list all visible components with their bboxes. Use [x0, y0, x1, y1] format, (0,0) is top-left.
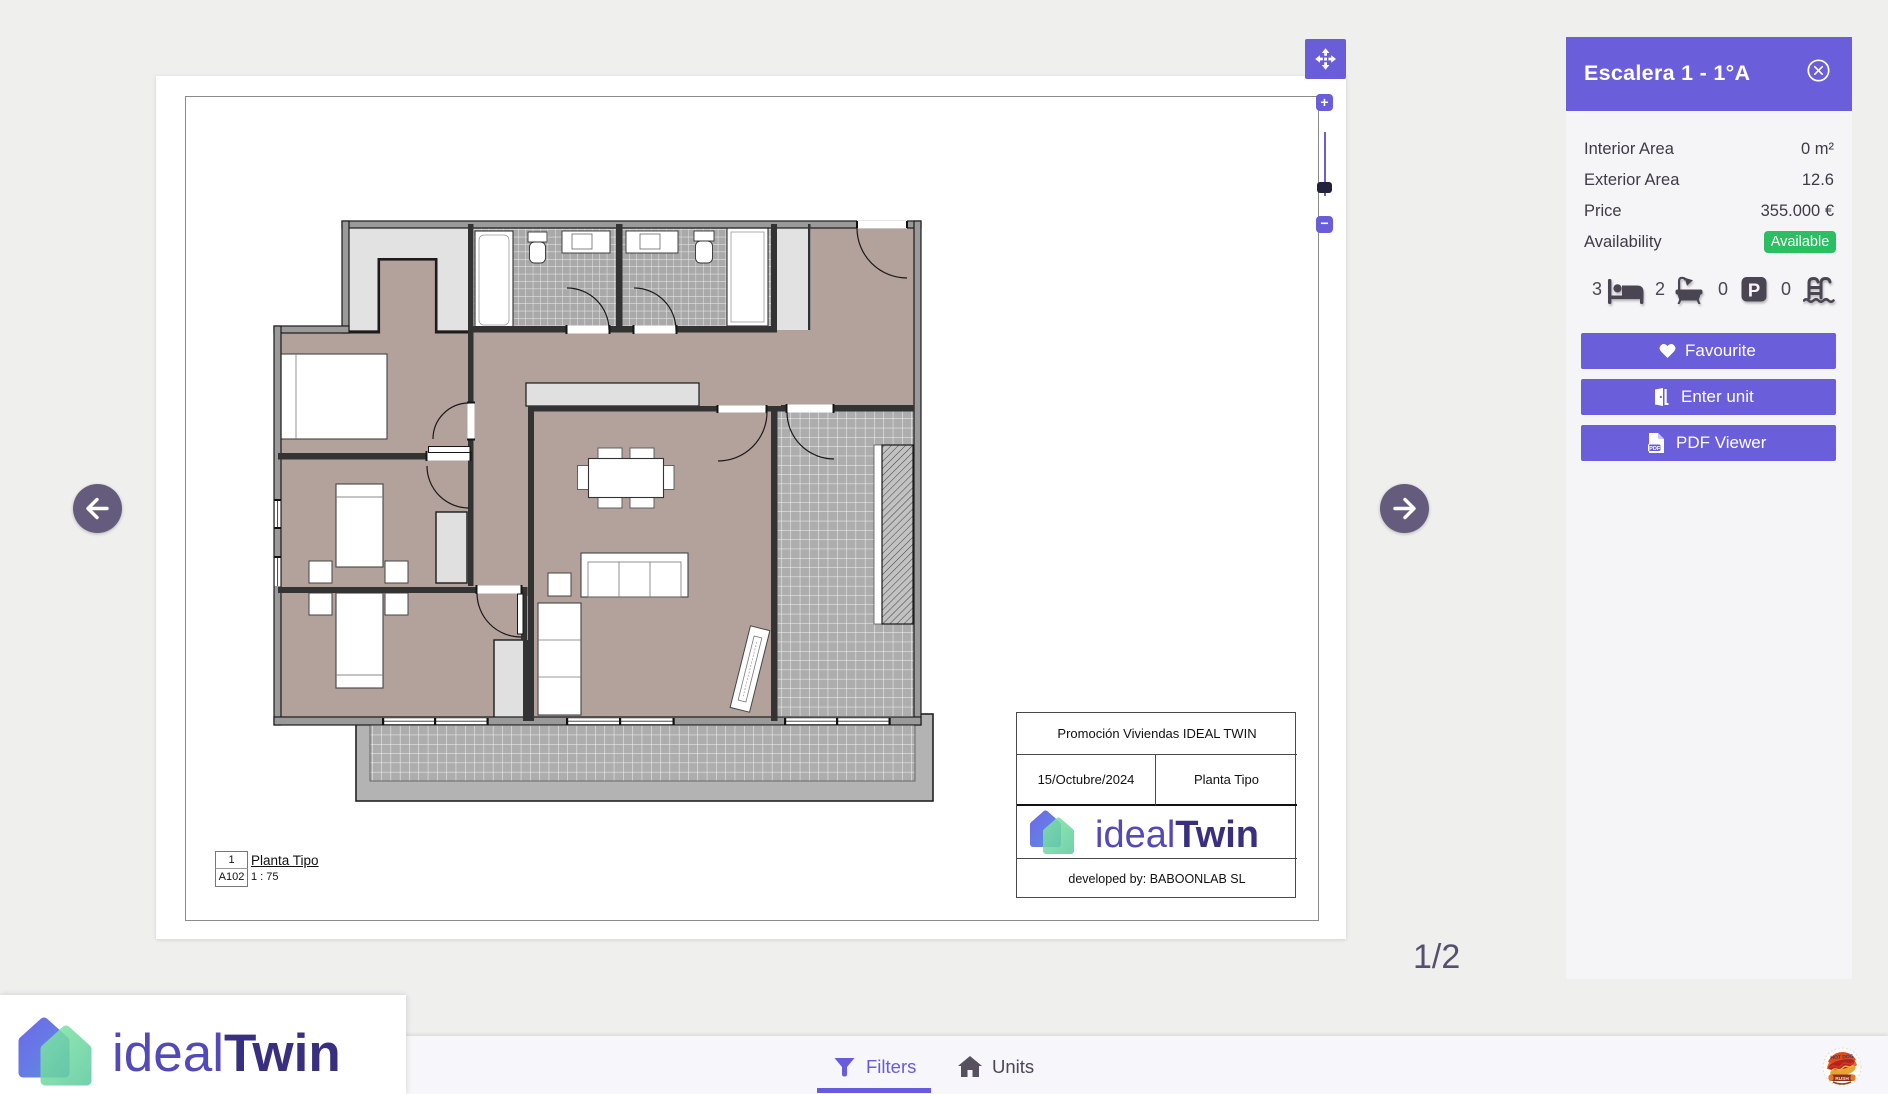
svg-text:idealTwin: idealTwin	[112, 1024, 341, 1083]
svg-text:idealTwin: idealTwin	[1095, 814, 1259, 856]
svg-text:PDF: PDF	[1649, 446, 1661, 452]
svg-text:RUSH: RUSH	[1835, 1076, 1849, 1082]
svg-text:P: P	[1748, 280, 1760, 301]
